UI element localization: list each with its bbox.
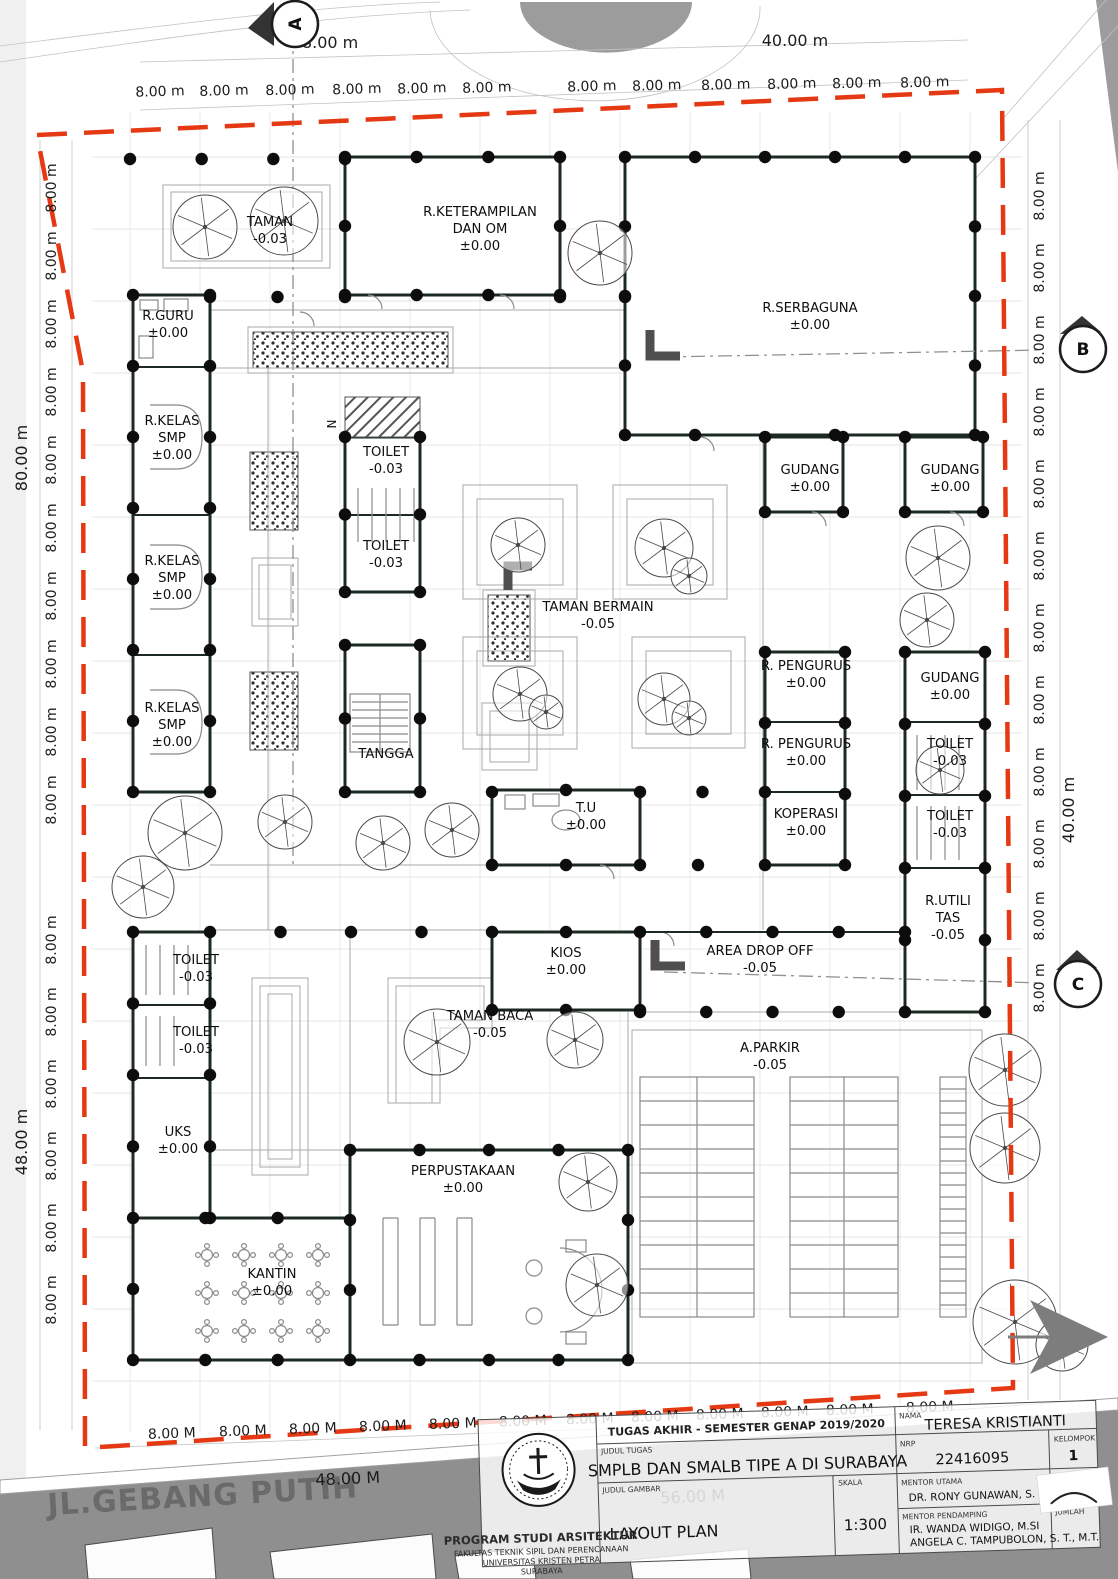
tree-icon	[671, 558, 707, 594]
column-dot	[415, 926, 427, 938]
grid-dim-right: 8.00 m	[1032, 603, 1048, 652]
entrance-ramp	[345, 397, 420, 437]
tree-icon	[566, 1254, 628, 1316]
column-dot	[124, 153, 136, 165]
column-dot	[839, 788, 851, 800]
column-dot	[345, 926, 357, 938]
door-swing	[700, 437, 714, 451]
grid-dim-left: 8.00 m	[44, 1131, 60, 1180]
grid-dim-left: 8.00 m	[44, 639, 60, 688]
column-dot	[204, 644, 216, 656]
tree-icon	[425, 803, 479, 857]
tree-trunk	[518, 692, 522, 696]
tree-trunk	[586, 1180, 590, 1184]
tree-icon	[672, 701, 706, 735]
tree-trunk	[687, 574, 691, 578]
dim-left-48: 48.00 m	[12, 1109, 31, 1175]
door-swing	[950, 512, 964, 526]
grid-dim-left: 8.00 m	[44, 775, 60, 824]
column-dot	[829, 151, 841, 163]
grid-dim-top: 8.00 m	[632, 77, 682, 95]
tree-icon	[356, 816, 410, 870]
column-dot	[839, 717, 851, 729]
door-swing	[368, 295, 382, 309]
tree-trunk	[183, 831, 187, 835]
column-dot	[759, 151, 771, 163]
layout-plan-drawing: JL.GEBANG PUTIH	[0, 0, 1118, 1579]
section-cut-glyph	[655, 940, 685, 966]
column-dot	[622, 1214, 634, 1226]
grid-dim-left: 8.00 m	[44, 915, 60, 964]
label-nama: NAMA	[899, 1411, 922, 1421]
door-swing	[500, 295, 514, 309]
column-dot	[127, 644, 139, 656]
column-dot	[339, 786, 351, 798]
grid-dim-left: 8.00 m	[44, 503, 60, 552]
label-judul-tugas: JUDUL TUGAS	[600, 1445, 653, 1456]
column-dot	[899, 926, 911, 938]
grid-dim-right: 8.00 m	[1032, 675, 1048, 724]
tree-trunk	[662, 697, 666, 701]
parking-stalls	[640, 1077, 966, 1317]
column-dot	[899, 431, 911, 443]
label-kelompok: KELOMPOK	[1054, 1433, 1097, 1443]
section-marker-c: C	[1055, 950, 1101, 1007]
grid-dim-left: 8.00 m	[44, 987, 60, 1036]
column-dot	[899, 506, 911, 518]
tree-trunk	[687, 716, 691, 720]
column-dot	[127, 431, 139, 443]
tree-trunk	[203, 225, 207, 229]
tree-trunk	[435, 1040, 439, 1044]
grid-dim-right: 8.00 m	[1032, 747, 1048, 796]
value-kelompok: 1	[1068, 1448, 1078, 1464]
column-dot	[486, 786, 498, 798]
column-dot	[979, 718, 991, 730]
value-skala: 1:300	[844, 1515, 888, 1534]
column-dot	[127, 1140, 139, 1152]
column-dot	[339, 220, 351, 232]
column-dot	[127, 1283, 139, 1295]
value-nrp: 22416095	[935, 1450, 1009, 1468]
column-dot	[977, 431, 989, 443]
tree-icon	[970, 1113, 1040, 1183]
room-label-taman-bermain: TAMAN BERMAIN-0.05	[541, 600, 653, 632]
column-dot	[344, 1354, 356, 1366]
tree-icon	[969, 1034, 1041, 1106]
column-dot	[486, 859, 498, 871]
column-dot	[759, 717, 771, 729]
column-dot	[899, 151, 911, 163]
column-dot	[339, 639, 351, 651]
grid-dim-left: 8.00 m	[44, 571, 60, 620]
column-dot	[414, 586, 426, 598]
column-dot	[634, 1006, 646, 1018]
column-dot	[204, 997, 216, 1009]
column-dot	[410, 289, 422, 301]
grid-dim-top: 8.00 m	[767, 76, 817, 94]
column-dot	[413, 1354, 425, 1366]
grid-dim-left: 8.00 m	[44, 1059, 60, 1108]
column-dot	[204, 1069, 216, 1081]
column-dot	[979, 1006, 991, 1018]
tree-trunk	[595, 1283, 599, 1287]
tree-trunk	[516, 543, 520, 547]
grid-dim-right: 8.00 m	[1032, 963, 1048, 1012]
column-dot	[554, 291, 566, 303]
column-dot	[339, 153, 351, 165]
column-dot	[899, 790, 911, 802]
column-dot	[199, 1212, 211, 1224]
column-dot	[127, 997, 139, 1009]
dim-bottom-48: 48.00 M	[315, 1468, 380, 1490]
column-dot	[759, 506, 771, 518]
column-dot	[410, 151, 422, 163]
column-dot	[833, 926, 845, 938]
column-dot	[127, 1069, 139, 1081]
grid-dim-bottom: 8.00 M	[429, 1415, 477, 1433]
column-dot	[339, 431, 351, 443]
column-dot	[199, 1354, 211, 1366]
column-dot	[692, 859, 704, 871]
column-dot	[271, 1212, 283, 1224]
column-dot	[127, 715, 139, 727]
column-dot	[979, 646, 991, 658]
column-dot	[339, 712, 351, 724]
grid-dim-left: 8.00 m	[44, 1203, 60, 1252]
tree-trunk	[662, 546, 666, 550]
column-dot	[979, 934, 991, 946]
column-dot	[839, 646, 851, 658]
column-dot	[204, 431, 216, 443]
grid-dim-right: 8.00 m	[1032, 819, 1048, 868]
column-dot	[204, 1140, 216, 1152]
grid-dim-top: 8.00 m	[462, 79, 512, 97]
column-dot	[634, 926, 646, 938]
label-skala: SKALA	[838, 1478, 863, 1488]
tree-icon	[112, 856, 174, 918]
dim-right-40: 40.00 m	[1059, 777, 1078, 843]
column-dot	[837, 431, 849, 443]
tree-trunk	[544, 710, 548, 714]
column-dot	[759, 786, 771, 798]
tree-icon	[491, 518, 545, 572]
column-dot	[204, 573, 216, 585]
column-dot	[413, 1144, 425, 1156]
room-label-tangga: TANGGA	[357, 747, 413, 762]
column-dot	[619, 429, 631, 441]
grid-dim-top: 8.00 m	[135, 83, 185, 101]
planter	[253, 332, 448, 368]
column-dot	[979, 862, 991, 874]
door-swing	[660, 932, 674, 946]
column-dot	[899, 718, 911, 730]
grid-dim-right: 8.00 m	[1032, 387, 1048, 436]
section-marker-wedge	[248, 2, 274, 46]
column-dot	[414, 712, 426, 724]
grid-dim-top: 8.00 m	[265, 82, 315, 100]
column-dot	[560, 859, 572, 871]
grid-dim-bottom: 8.00 M	[148, 1425, 196, 1443]
column-dot	[969, 220, 981, 232]
column-dot	[554, 151, 566, 163]
grid-dim-right: 8.00 m	[1032, 243, 1048, 292]
column-dot	[127, 1354, 139, 1366]
grid-dim-left: 8.00 m	[44, 367, 60, 416]
column-dot	[204, 291, 216, 303]
context-line	[1002, 0, 1106, 120]
column-dot	[979, 790, 991, 802]
tree-icon	[906, 526, 970, 590]
paraf-paper	[1036, 1467, 1112, 1513]
column-dot	[271, 1354, 283, 1366]
column-dot	[689, 151, 701, 163]
grid-dim-top: 8.00 m	[397, 80, 447, 98]
column-dot	[483, 1354, 495, 1366]
column-dot	[204, 360, 216, 372]
column-dot	[969, 359, 981, 371]
column-dot	[837, 506, 849, 518]
column-dot	[552, 1144, 564, 1156]
column-dot	[759, 646, 771, 658]
column-dot	[127, 926, 139, 938]
column-dot	[339, 508, 351, 520]
column-dot	[267, 153, 279, 165]
grid-dim-right: 8.00 m	[1032, 459, 1048, 508]
grid-dim-bottom: 8.00 M	[289, 1420, 337, 1438]
column-dot	[127, 360, 139, 372]
column-dot	[339, 291, 351, 303]
grid-dim-right: 8.00 m	[1032, 171, 1048, 220]
column-dot	[700, 1006, 712, 1018]
university-logo-icon	[501, 1433, 575, 1507]
tree-icon	[547, 1012, 603, 1068]
grid-dim-top: 8.00 m	[701, 76, 751, 94]
section-marker-letter: C	[1072, 975, 1084, 995]
tree-trunk	[1003, 1068, 1007, 1072]
column-dot	[344, 1284, 356, 1296]
column-dot	[700, 926, 712, 938]
tree-trunk	[1013, 1320, 1017, 1324]
grid-dim-left: 8.00 m	[44, 1275, 60, 1324]
grid-dim-bottom: 8.00 M	[359, 1418, 407, 1436]
column-dot	[414, 639, 426, 651]
column-dot	[195, 153, 207, 165]
column-dot	[619, 359, 631, 371]
column-dot	[483, 1144, 495, 1156]
grid-dim-top: 8.00 m	[332, 81, 382, 99]
tree-trunk	[283, 820, 287, 824]
tree-icon	[568, 221, 632, 285]
column-dot	[344, 1144, 356, 1156]
column-dot	[622, 1354, 634, 1366]
room-label-a-parkir: A.PARKIR-0.05	[740, 1041, 800, 1073]
grid-dim-right: 8.00 m	[1032, 315, 1048, 364]
layout-plan-page: JL.GEBANG PUTIH	[0, 0, 1118, 1579]
column-dot	[482, 289, 494, 301]
column-dot	[759, 859, 771, 871]
column-dot	[759, 431, 771, 443]
grid-dim-top: 8.00 m	[567, 78, 617, 96]
section-marker-letter: A	[286, 17, 306, 31]
column-dot	[274, 926, 286, 938]
tree-trunk	[381, 841, 385, 845]
tree-trunk	[936, 556, 940, 560]
column-dot	[554, 220, 566, 232]
section-marker-letter: B	[1077, 340, 1090, 360]
tree-icon	[900, 593, 954, 647]
column-dot	[127, 289, 139, 301]
column-dot	[204, 926, 216, 938]
column-dot	[339, 586, 351, 598]
tree-trunk	[450, 828, 454, 832]
column-dot	[766, 926, 778, 938]
column-dot	[271, 291, 283, 303]
column-dot	[833, 1006, 845, 1018]
context-corner	[1096, 0, 1118, 172]
column-dot	[127, 786, 139, 798]
tree-trunk	[925, 618, 929, 622]
column-dot	[899, 1006, 911, 1018]
grid-dim-bottom: 8.00 M	[219, 1423, 267, 1441]
column-dot	[127, 573, 139, 585]
column-dot	[619, 291, 631, 303]
context-road-curve	[0, 2, 440, 46]
grid-dim-left: 8.00 m	[44, 435, 60, 484]
column-dot	[486, 926, 498, 938]
north-label: N	[325, 420, 339, 429]
grid-dim-top: 8.00 m	[900, 74, 950, 92]
column-dot	[899, 646, 911, 658]
tree-trunk	[573, 1038, 577, 1042]
column-dot	[127, 1212, 139, 1224]
column-dot	[634, 786, 646, 798]
label-nrp: NRP	[900, 1439, 916, 1448]
column-dot	[634, 859, 646, 871]
column-dot	[482, 151, 494, 163]
dim-top-40: 40.00 m	[762, 31, 828, 50]
section-marker-a: A	[248, 1, 318, 47]
column-dot	[689, 429, 701, 441]
column-dot	[127, 502, 139, 514]
grid-dim-top: 8.00 m	[832, 75, 882, 93]
room-wall	[625, 157, 975, 435]
column-dot	[204, 502, 216, 514]
column-dot	[696, 786, 708, 798]
column-dot	[899, 862, 911, 874]
grid-dim-left: 8.00 m	[44, 163, 60, 212]
column-dot	[414, 786, 426, 798]
tree-trunk	[598, 251, 602, 255]
tree-icon	[559, 1153, 617, 1211]
grid-dim-left: 8.00 m	[44, 707, 60, 756]
grid-dim-right: 8.00 m	[1032, 531, 1048, 580]
label-judul-gambar: JUDUL GAMBAR	[601, 1484, 661, 1495]
column-dot	[560, 784, 572, 796]
column-dot	[414, 508, 426, 520]
dim-left-80: 80.00 m	[12, 425, 31, 491]
tree-icon	[173, 195, 237, 259]
tree-trunk	[141, 885, 145, 889]
institution-line-4: SURABAYA	[521, 1566, 564, 1576]
column-dot	[204, 786, 216, 798]
column-dot	[977, 506, 989, 518]
column-dot	[839, 859, 851, 871]
grid-dim-top: 8.00 m	[199, 82, 249, 100]
section-marker-b: B	[1060, 316, 1106, 372]
page-margin-left	[0, 0, 26, 1579]
door-swing	[812, 512, 826, 526]
tree-icon	[529, 695, 563, 729]
column-dot	[619, 151, 631, 163]
tree-icon	[148, 796, 222, 870]
tree-trunk	[1003, 1146, 1007, 1150]
column-dot	[414, 431, 426, 443]
context-island	[520, 2, 692, 53]
column-dot	[560, 926, 572, 938]
column-dot	[344, 1214, 356, 1226]
grid-dim-right: 8.00 m	[1032, 891, 1048, 940]
column-dot	[766, 1006, 778, 1018]
grid-dim-left: 8.00 m	[44, 231, 60, 280]
grid-dim-left: 8.00 m	[44, 299, 60, 348]
tree-icon	[258, 795, 312, 849]
door-swing	[300, 312, 314, 326]
column-dot	[969, 290, 981, 302]
column-dot	[969, 151, 981, 163]
column-dot	[622, 1144, 634, 1156]
column-dot	[552, 1354, 564, 1366]
column-dot	[204, 715, 216, 727]
